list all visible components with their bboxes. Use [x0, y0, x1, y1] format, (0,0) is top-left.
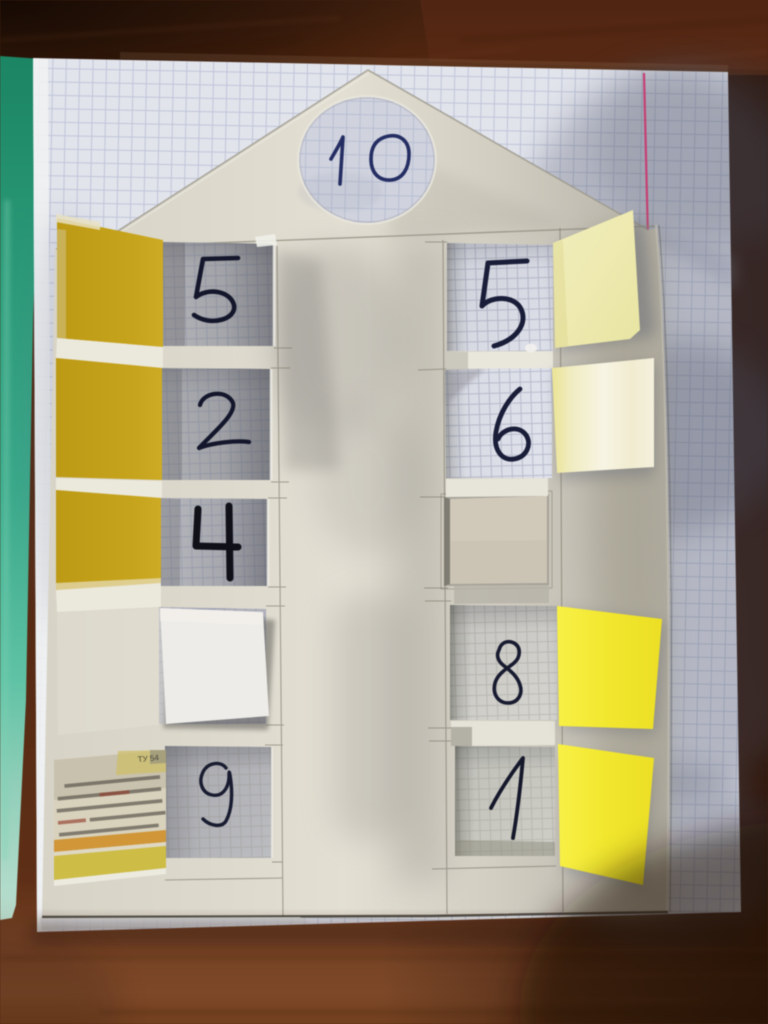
svg-text:ТУ 54: ТУ 54 — [137, 753, 159, 764]
